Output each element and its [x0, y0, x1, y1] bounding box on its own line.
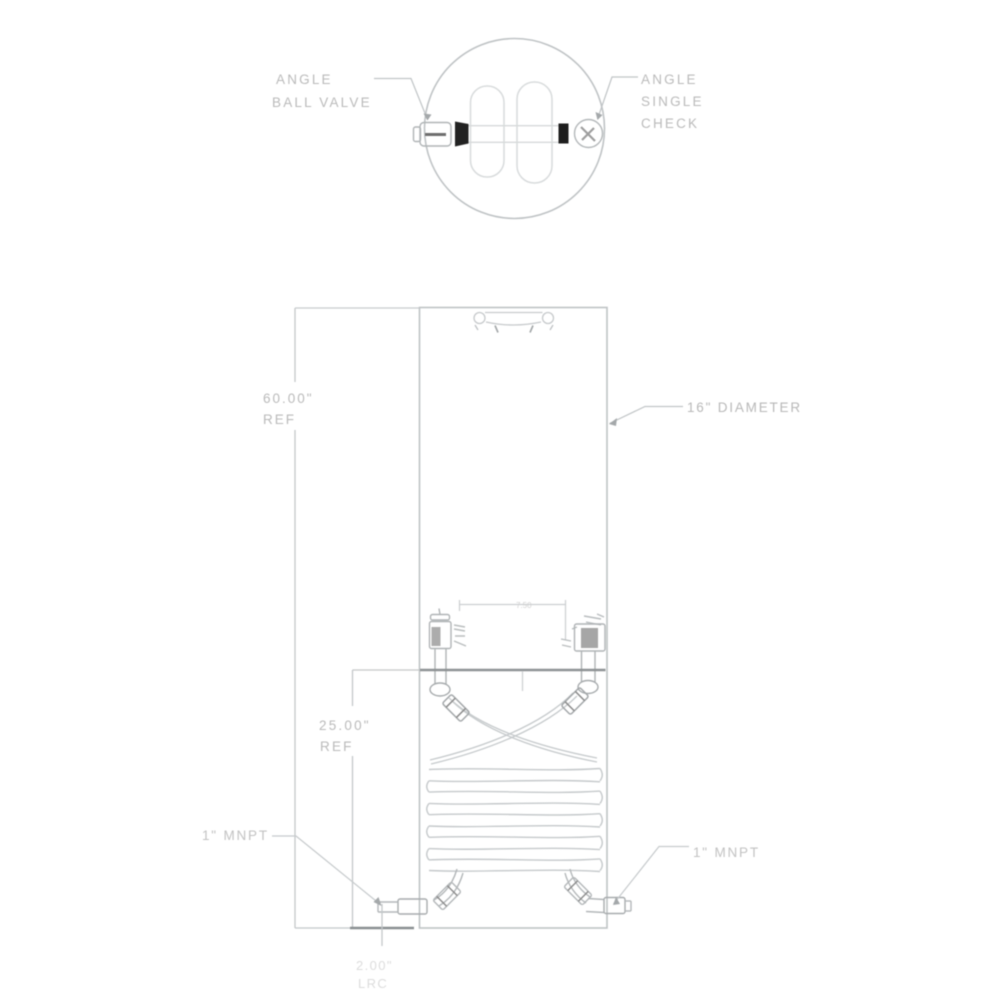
svg-text:ANGLE: ANGLE: [641, 72, 698, 87]
svg-text:LRC: LRC: [358, 976, 388, 991]
svg-text:REF: REF: [320, 739, 354, 754]
svg-text:SINGLE: SINGLE: [641, 94, 704, 109]
svg-text:BALL VALVE: BALL VALVE: [272, 95, 372, 110]
svg-text:1" MNPT: 1" MNPT: [693, 845, 760, 860]
svg-text:CHECK: CHECK: [641, 116, 699, 131]
svg-text:ANGLE: ANGLE: [276, 72, 333, 87]
svg-text:2.00": 2.00": [356, 958, 393, 973]
svg-text:25.00": 25.00": [319, 718, 371, 733]
svg-text:REF: REF: [263, 412, 296, 427]
svg-text:60.00": 60.00": [263, 391, 314, 406]
svg-text:1" MNPT: 1" MNPT: [202, 828, 269, 843]
svg-text:16" DIAMETER: 16" DIAMETER: [687, 400, 802, 415]
svg-text:7.50: 7.50: [516, 601, 532, 610]
